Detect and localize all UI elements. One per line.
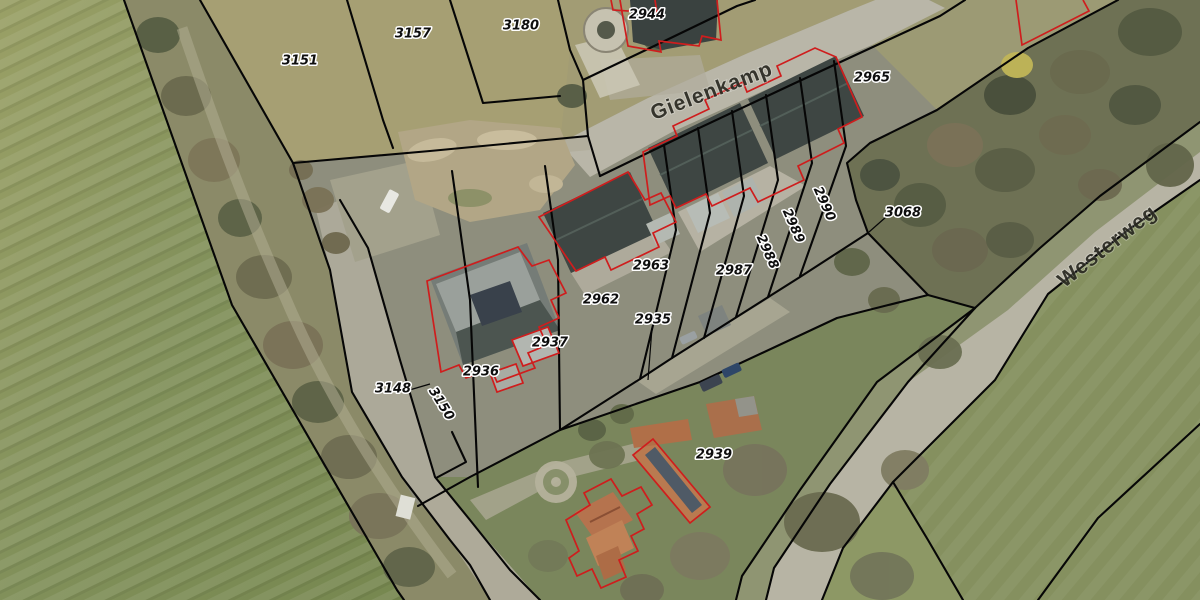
parcel-label-2936: 2936 (463, 365, 499, 380)
cadastral-map-canvas[interactable]: Gielenkamp Westerweg 3151 3157 3180 2944… (0, 0, 1200, 600)
map-viewport: Gielenkamp Westerweg 3151 3157 3180 2944… (0, 0, 1200, 600)
parcel-label-2937: 2937 (532, 336, 569, 351)
parcel-label-2963: 2963 (633, 259, 669, 274)
parcel-label-3180: 3180 (503, 19, 539, 34)
parcel-label-3151: 3151 (282, 54, 318, 69)
parcel-label-2965: 2965 (854, 71, 890, 86)
parcel-label-2939: 2939 (696, 448, 732, 463)
parcel-label-2987: 2987 (716, 264, 753, 279)
parcel-label-2935: 2935 (635, 313, 671, 328)
parcel-label-3157: 3157 (395, 27, 432, 42)
parcel-label-3148: 3148 (375, 382, 411, 397)
parcel-label-2962: 2962 (583, 293, 619, 308)
parcel-label-3068: 3068 (885, 206, 921, 221)
parcel-label-2944: 2944 (629, 8, 665, 23)
